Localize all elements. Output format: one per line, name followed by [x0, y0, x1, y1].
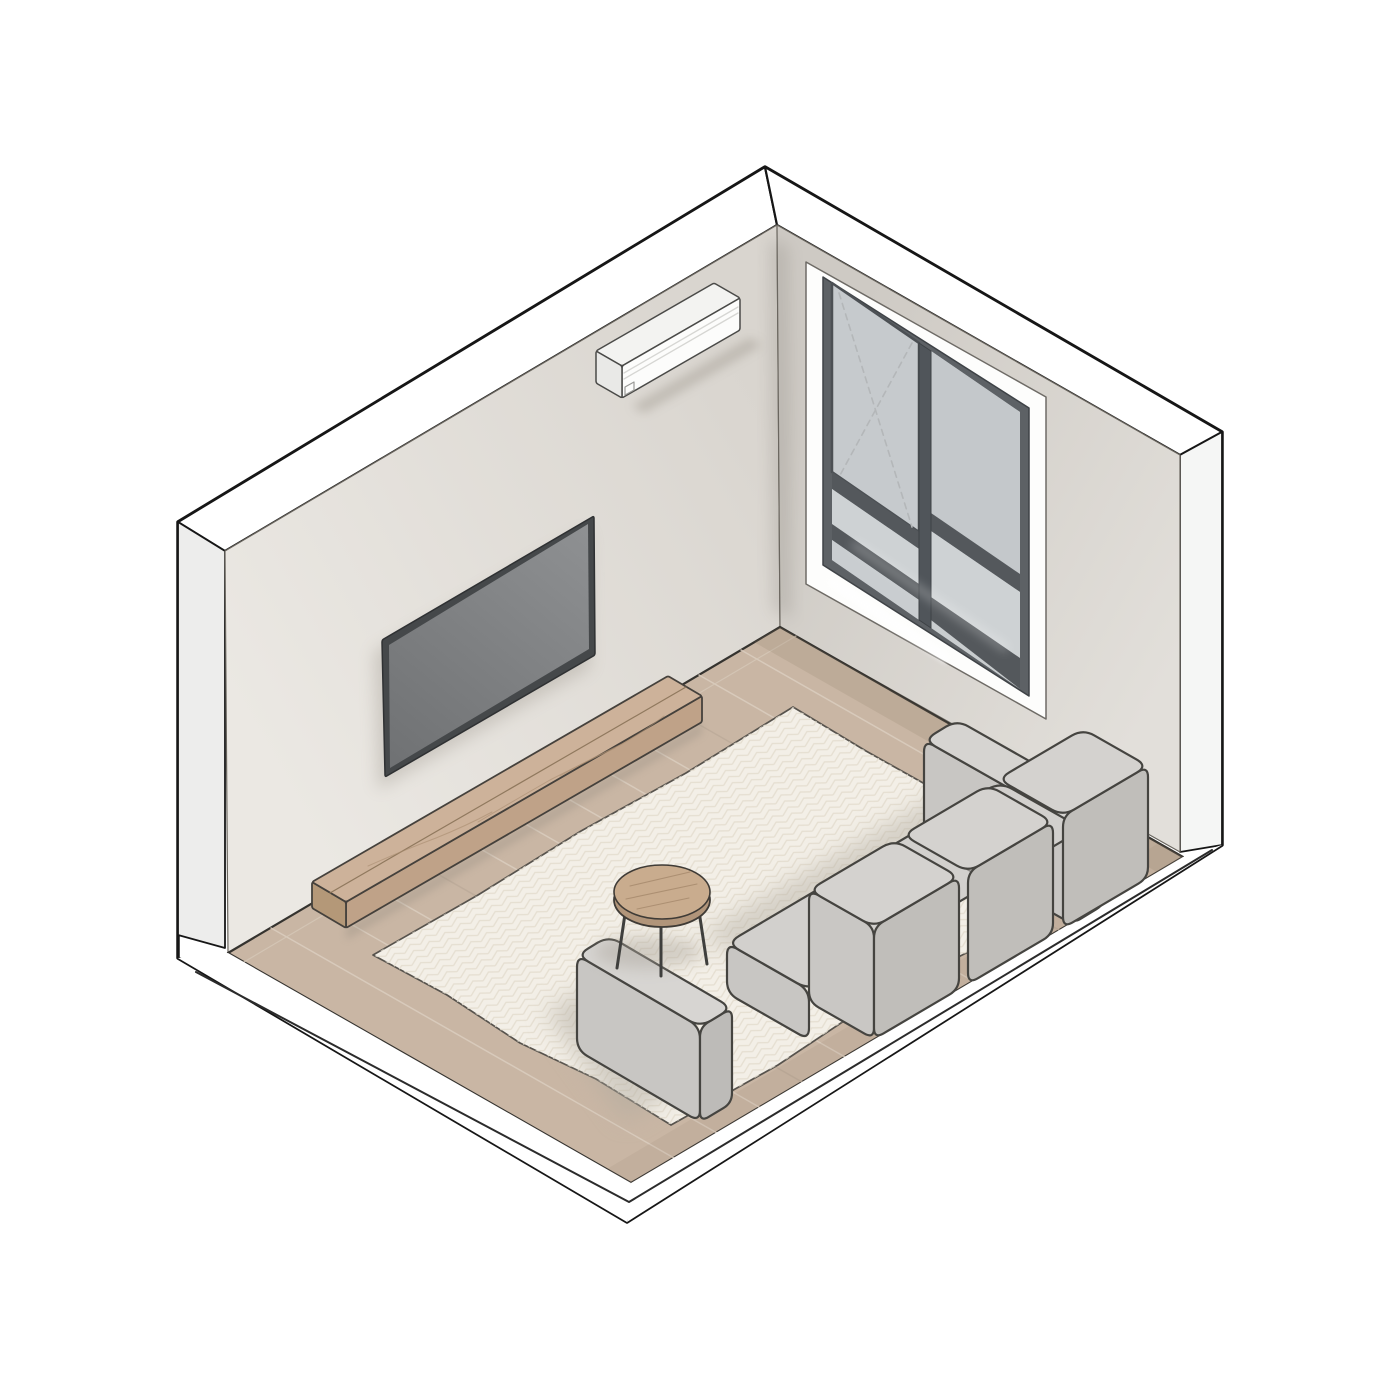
isometric-room-illustration: [0, 0, 1400, 1400]
armrest-near-side-front: [700, 1011, 732, 1118]
scene-canvas: [0, 0, 1400, 1400]
table-shadow: [594, 936, 702, 968]
wall-end-face-left: [178, 522, 225, 948]
table-top: [614, 865, 710, 919]
wall-corner-shadow: [770, 238, 791, 618]
wall-end-face-right: [1180, 432, 1222, 852]
window-mullion: [919, 343, 931, 628]
